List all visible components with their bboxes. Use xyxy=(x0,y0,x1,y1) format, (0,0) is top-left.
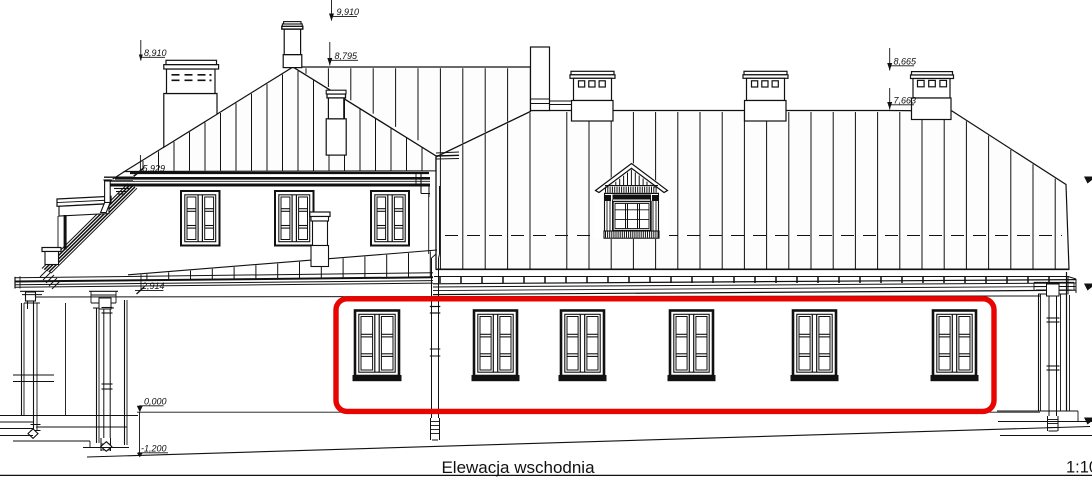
svg-text:7,663: 7,663 xyxy=(894,96,917,106)
svg-text:1:100: 1:100 xyxy=(1066,459,1092,477)
svg-text:8,910: 8,910 xyxy=(144,48,167,58)
svg-text:5,929: 5,929 xyxy=(143,164,166,174)
svg-text:9,910: 9,910 xyxy=(337,7,360,17)
svg-text:8,795: 8,795 xyxy=(335,51,359,61)
svg-text:2,914: 2,914 xyxy=(141,281,165,291)
svg-text:0,000: 0,000 xyxy=(144,397,167,407)
svg-text:8,665: 8,665 xyxy=(894,57,918,67)
svg-text:-1,200: -1,200 xyxy=(141,444,167,454)
svg-text:Elewacja wschodnia: Elewacja wschodnia xyxy=(441,458,595,477)
